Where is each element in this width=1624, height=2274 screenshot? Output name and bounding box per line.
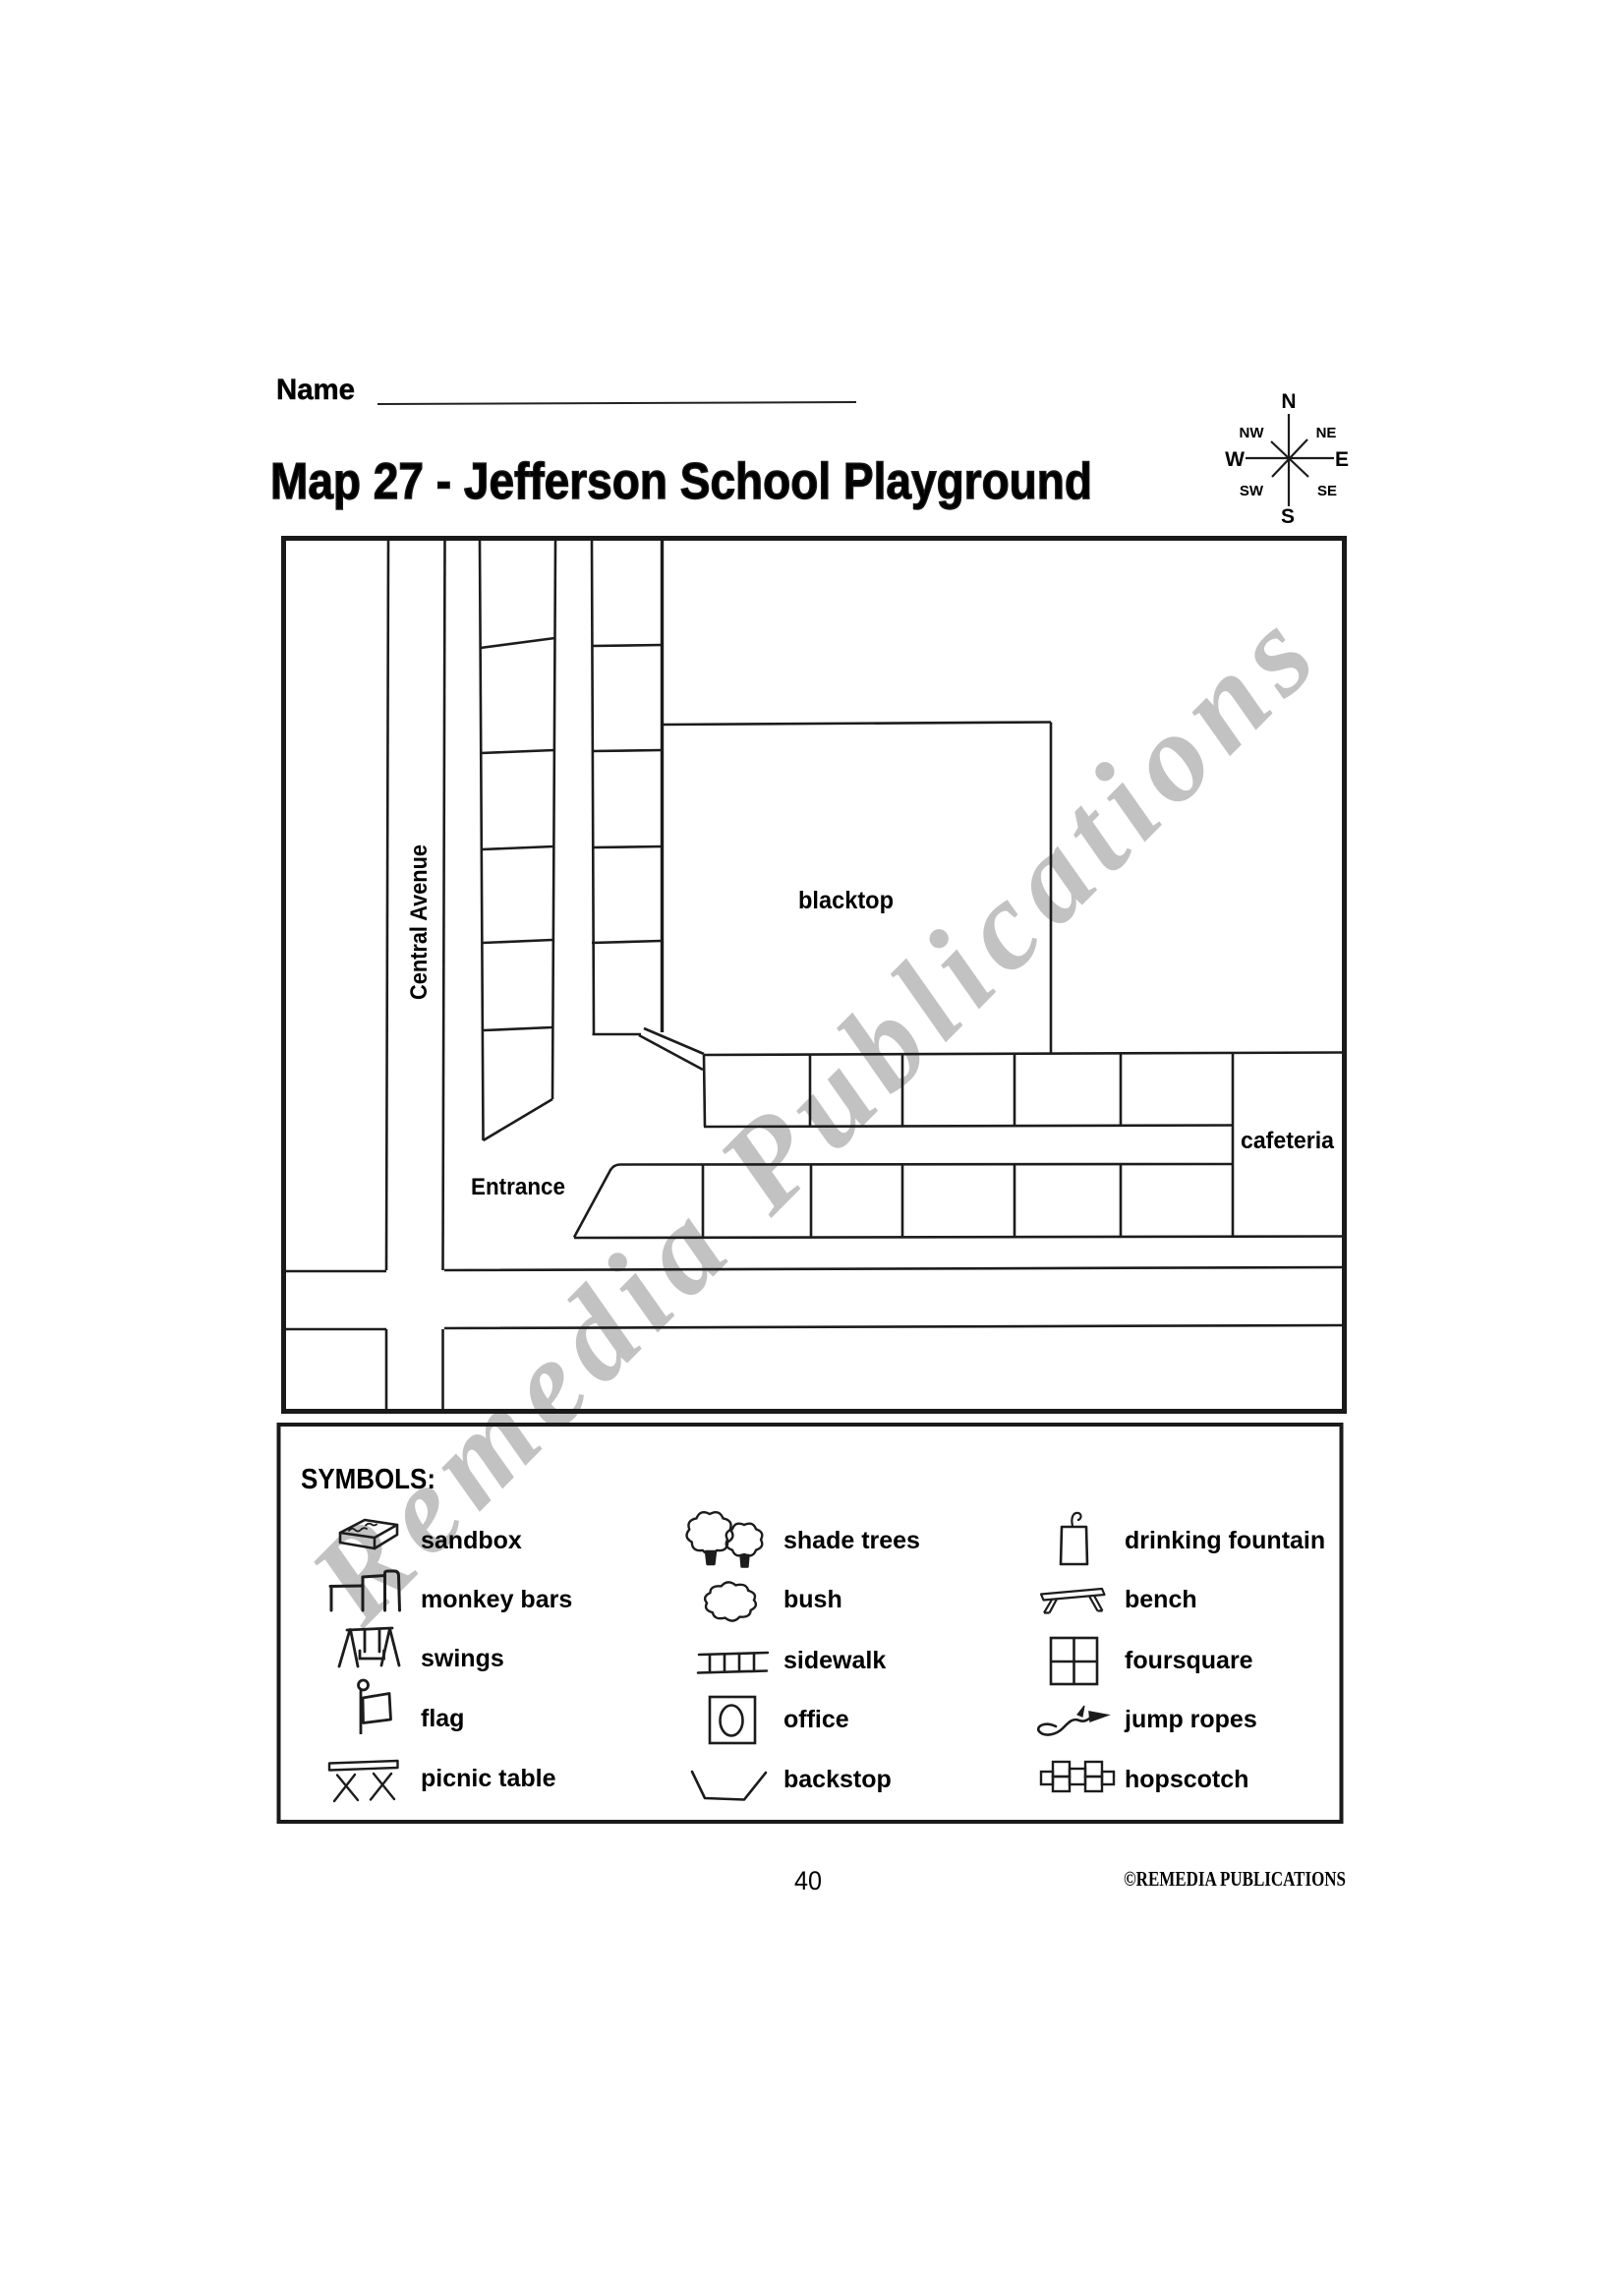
svg-text:bench: bench <box>1125 1586 1197 1613</box>
svg-text:©REMEDIA PUBLICATIONS: ©REMEDIA PUBLICATIONS <box>1124 1867 1346 1891</box>
svg-text:Map 27 - Jefferson School Play: Map 27 - Jefferson School Playground <box>270 453 1092 510</box>
svg-text:Entrance: Entrance <box>471 1174 565 1200</box>
svg-text:bush: bush <box>783 1586 842 1613</box>
svg-text:monkey bars: monkey bars <box>421 1586 572 1613</box>
svg-text:SE: SE <box>1317 483 1337 499</box>
svg-text:NW: NW <box>1240 425 1265 441</box>
svg-text:SW: SW <box>1240 483 1264 499</box>
svg-text:W: W <box>1225 448 1245 471</box>
svg-text:foursquare: foursquare <box>1125 1647 1253 1674</box>
svg-text:hopscotch: hopscotch <box>1125 1766 1248 1793</box>
svg-text:shade trees: shade trees <box>783 1527 920 1554</box>
svg-text:sidewalk: sidewalk <box>783 1647 886 1674</box>
svg-text:E: E <box>1335 448 1349 471</box>
svg-text:swings: swings <box>421 1645 504 1672</box>
svg-text:40: 40 <box>794 1866 822 1895</box>
svg-text:jump ropes: jump ropes <box>1124 1706 1257 1733</box>
svg-text:S: S <box>1281 505 1295 528</box>
svg-text:Central Avenue: Central Avenue <box>406 845 433 1000</box>
svg-text:N: N <box>1281 390 1296 413</box>
svg-text:office: office <box>783 1706 849 1733</box>
svg-text:drinking fountain: drinking fountain <box>1125 1527 1325 1554</box>
svg-text:NE: NE <box>1316 425 1337 441</box>
svg-text:SYMBOLS:: SYMBOLS: <box>301 1464 435 1495</box>
svg-text:flag: flag <box>421 1705 464 1732</box>
svg-text:Name: Name <box>276 374 355 406</box>
svg-text:cafeteria: cafeteria <box>1241 1128 1335 1154</box>
svg-text:picnic table: picnic table <box>421 1765 556 1792</box>
svg-text:blacktop: blacktop <box>798 887 894 914</box>
svg-text:backstop: backstop <box>783 1766 892 1793</box>
svg-text:sandbox: sandbox <box>421 1527 522 1554</box>
